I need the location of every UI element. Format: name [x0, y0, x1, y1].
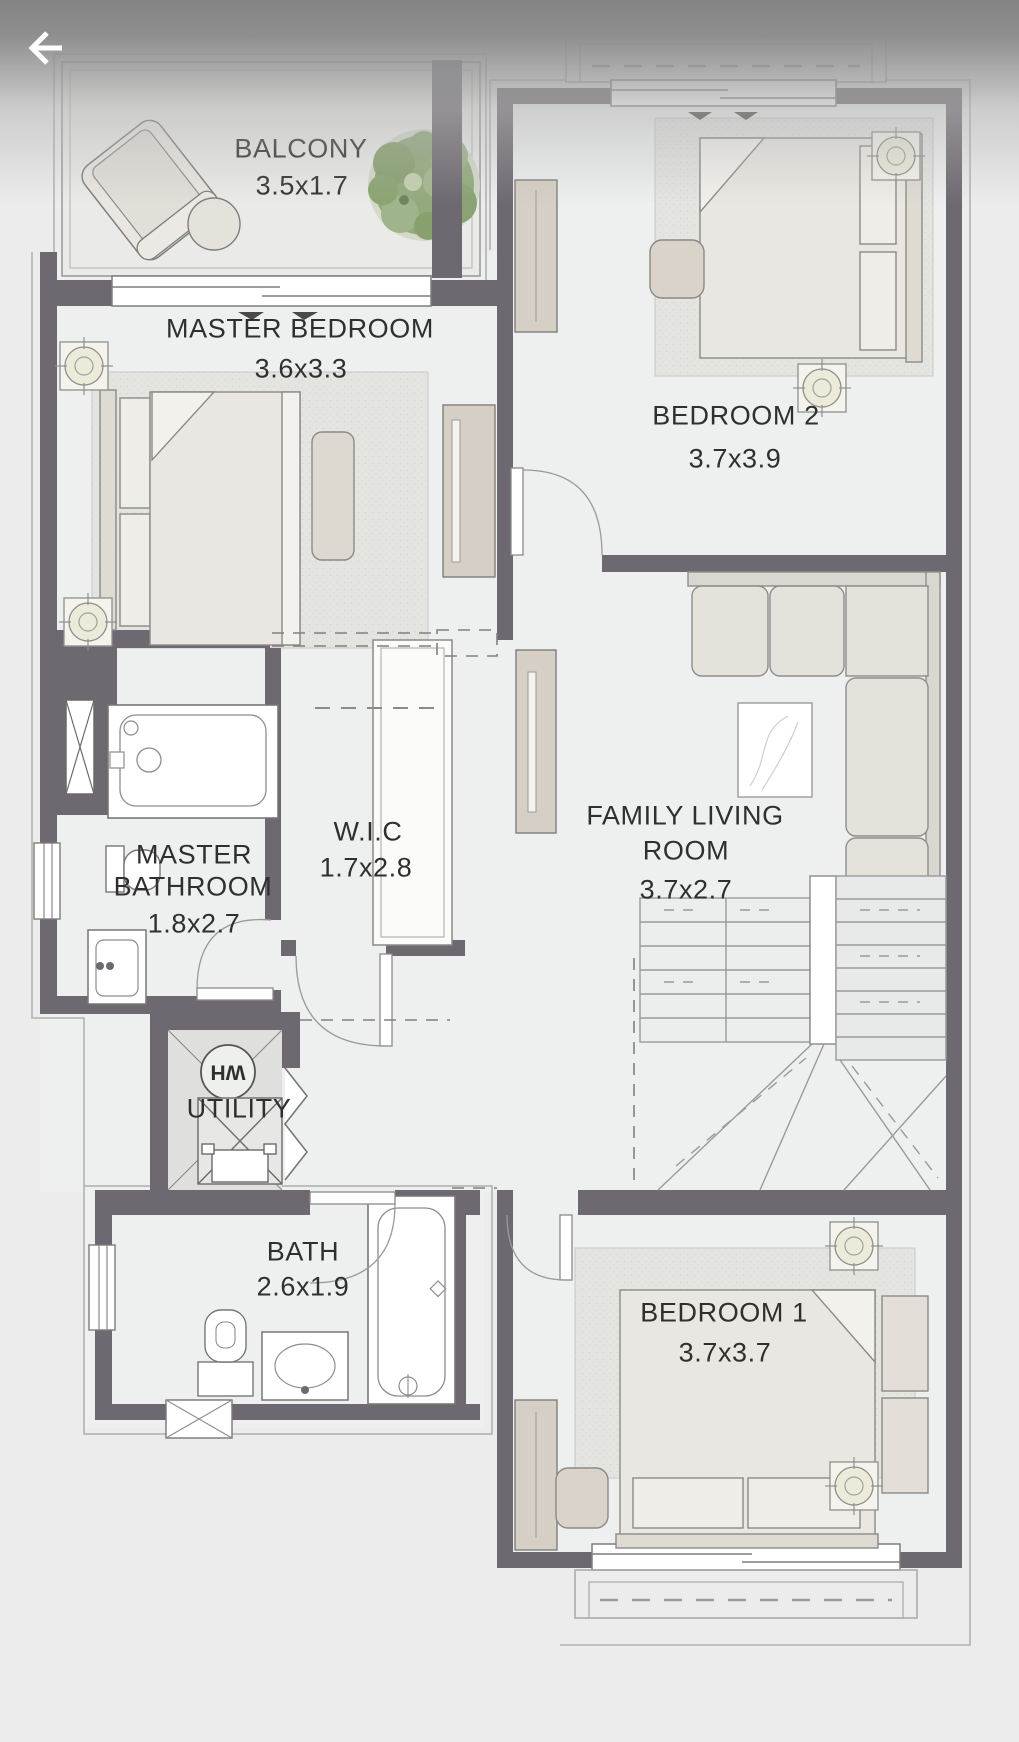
- sofa-back: [688, 572, 940, 586]
- toilet: [198, 1310, 253, 1396]
- back-button[interactable]: [16, 20, 72, 76]
- bed-headboard: [100, 390, 116, 630]
- bed-pillow: [860, 252, 896, 350]
- sofa-corner: [846, 586, 928, 676]
- bed-pillow: [120, 398, 150, 508]
- wardrobe-east: [882, 1296, 928, 1391]
- tree-icon: [368, 129, 480, 241]
- balcony: [62, 62, 480, 276]
- bathtub: [368, 1196, 455, 1404]
- window-master-bathroom: [34, 843, 60, 919]
- duct-shaft: [66, 700, 94, 794]
- wardrobe-east: [882, 1398, 928, 1493]
- window-bath: [89, 1245, 115, 1330]
- side-table: [188, 198, 240, 250]
- ac-unit: [166, 1400, 232, 1438]
- nightstand: [556, 1468, 608, 1528]
- floorplan-image[interactable]: WH: [0, 0, 1019, 1742]
- bed-foot-runner: [282, 392, 300, 645]
- bed-bench: [650, 240, 704, 298]
- bed-bench: [312, 432, 354, 560]
- sink-vanity: [88, 930, 146, 1004]
- bed-pillow: [633, 1478, 743, 1528]
- bed-headboard: [616, 1534, 878, 1548]
- app-screen: WH: [0, 0, 1019, 1742]
- sofa-seat: [770, 586, 844, 676]
- toilet: [106, 846, 160, 892]
- sink-vanity: [262, 1332, 348, 1400]
- arrow-left-icon: [20, 24, 68, 72]
- coffee-table: [738, 703, 812, 797]
- washing-machine: [198, 1098, 282, 1184]
- water-heater-label: WH: [211, 1061, 246, 1084]
- sofa-seat: [846, 678, 928, 836]
- sofa-seat: [692, 586, 768, 676]
- bed-pillow: [120, 514, 150, 626]
- bathtub: [108, 705, 278, 818]
- dresser: [443, 405, 495, 577]
